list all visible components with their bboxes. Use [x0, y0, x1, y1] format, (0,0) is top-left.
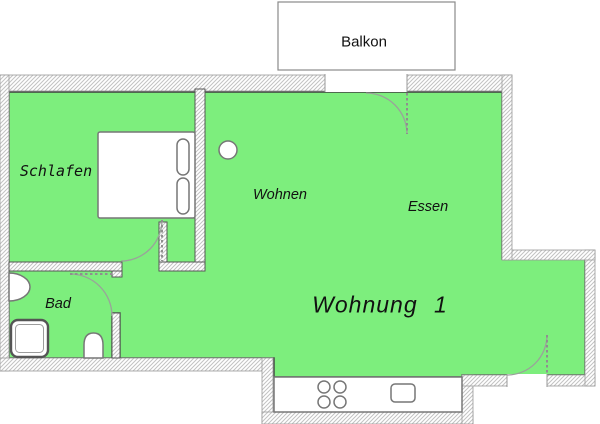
bed-pillow-top — [177, 139, 189, 175]
wall-kitchen-bottom — [262, 412, 473, 424]
label-balkon: Balkon — [341, 34, 387, 51]
wall-step-top — [502, 250, 595, 260]
wall-left — [0, 75, 9, 371]
floor-plan-drawing — [0, 0, 600, 424]
wall-bad-bottom — [0, 358, 273, 371]
bed-pillow-bottom — [177, 178, 189, 214]
kitchen-sink — [391, 384, 415, 402]
label-wohnen: Wohnen — [253, 187, 307, 203]
toilet — [84, 333, 103, 358]
label-apartment-title: Wohnung 1 — [312, 292, 448, 319]
stove-burner-1 — [318, 381, 330, 393]
balcony-door-opening — [325, 74, 407, 92]
label-schlafen: Schlafen — [20, 162, 92, 180]
wall-door-niche-bottom — [159, 262, 205, 271]
round-stool — [219, 141, 237, 159]
wall-right-upper — [502, 75, 512, 260]
entry-door-opening — [507, 374, 547, 387]
label-bad: Bad — [45, 296, 71, 312]
floor-plan: Balkon Schlafen Wohnen Essen Bad Wohnung… — [0, 0, 600, 424]
wall-bad-right — [112, 313, 120, 358]
wall-schlafen-bottom — [9, 262, 122, 271]
wall-jamb-stub — [112, 271, 122, 277]
stove-burner-4 — [334, 396, 346, 408]
label-essen: Essen — [408, 199, 448, 215]
wall-schlafen-wohnen — [195, 89, 205, 262]
kitchen-counter — [274, 377, 462, 412]
wall-top — [0, 75, 512, 91]
stove-burner-3 — [318, 396, 330, 408]
wall-right-lower — [585, 250, 595, 386]
stove-burner-2 — [334, 381, 346, 393]
